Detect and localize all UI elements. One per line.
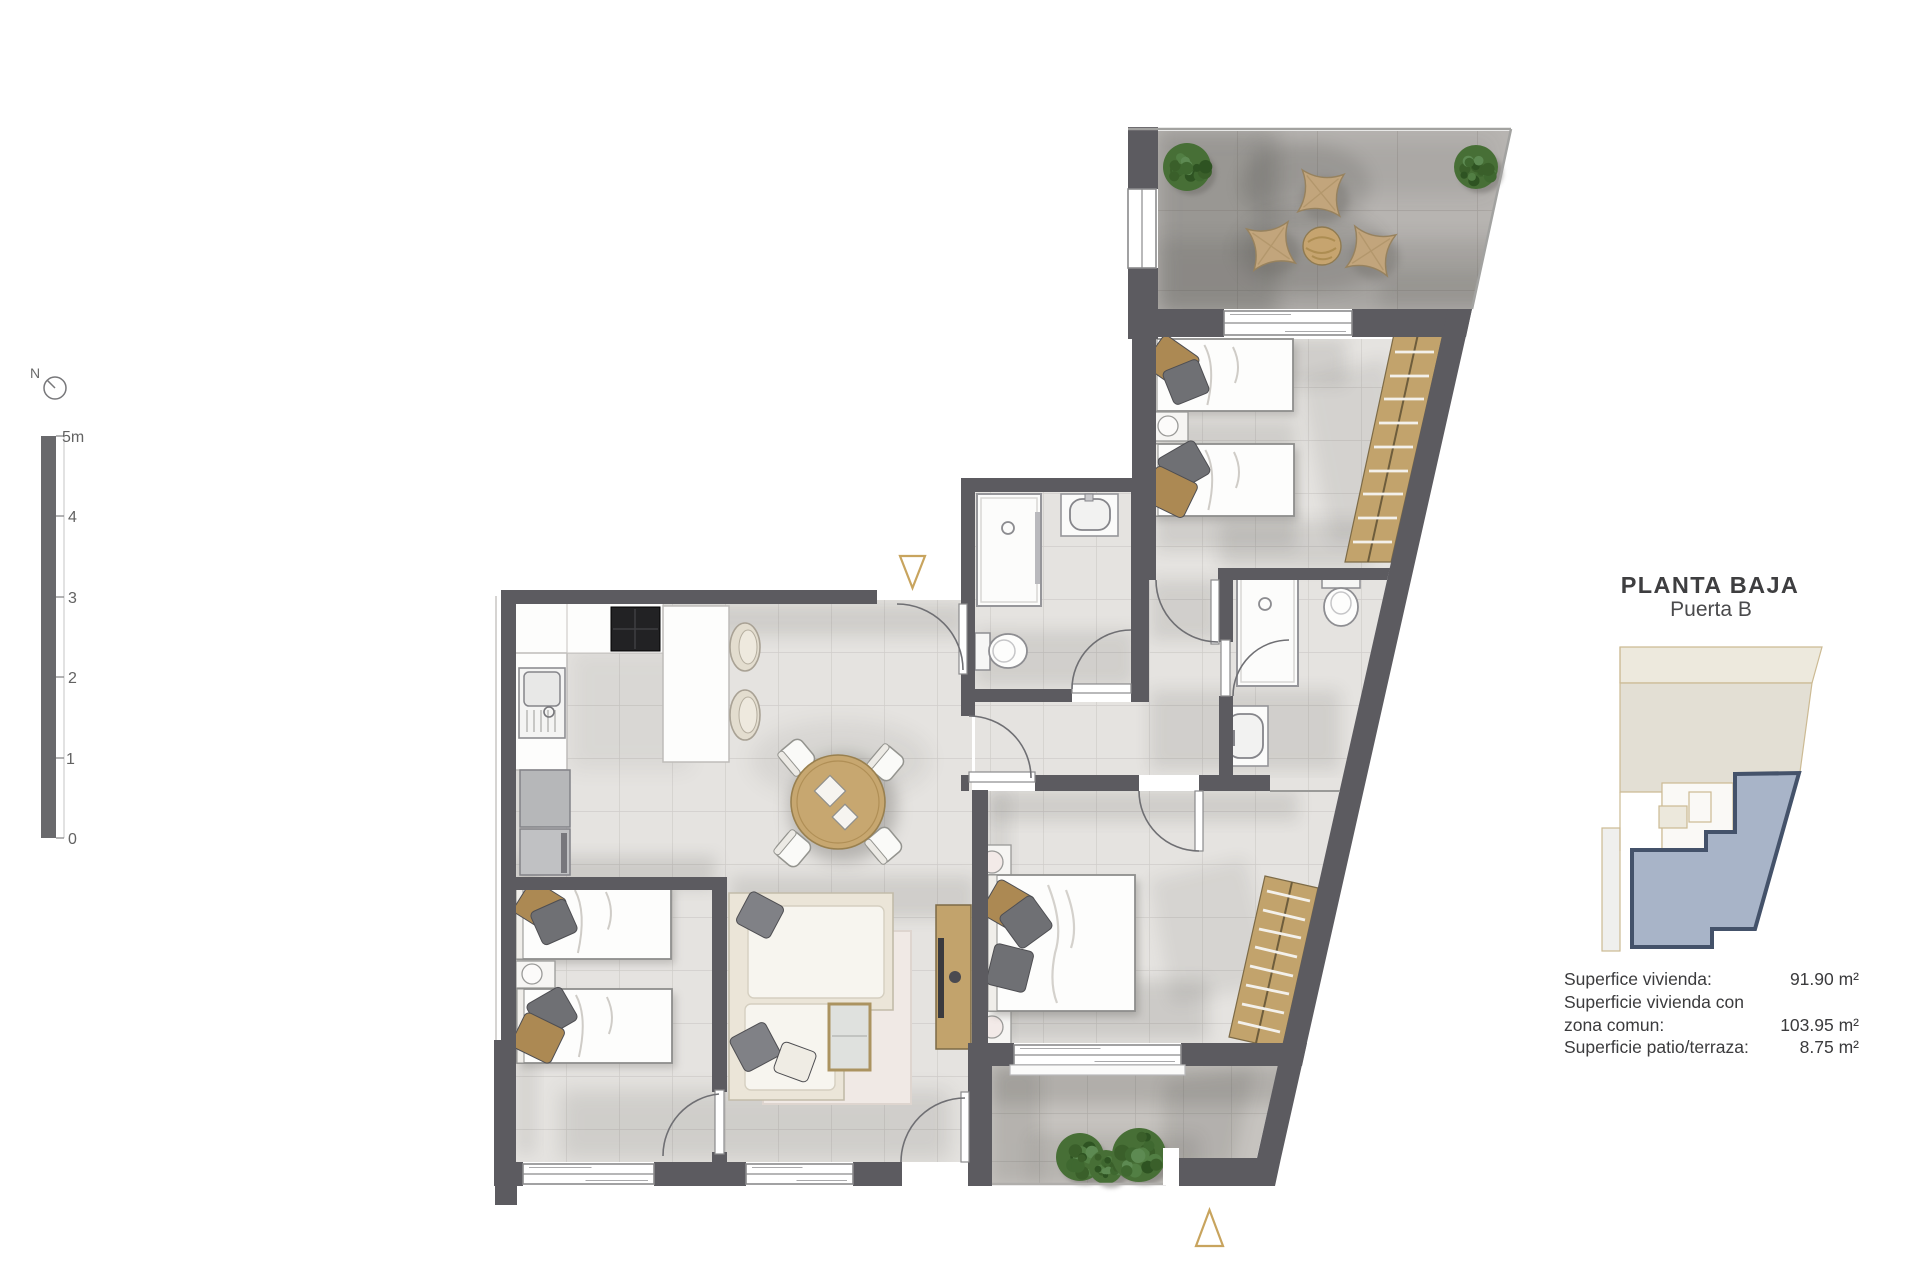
svg-text:Superfice vivienda:: Superfice vivienda: bbox=[1564, 969, 1712, 989]
svg-text:103.95 m²: 103.95 m² bbox=[1780, 1015, 1859, 1035]
svg-text:4: 4 bbox=[68, 509, 77, 526]
svg-text:PLANTA BAJA: PLANTA BAJA bbox=[1621, 572, 1800, 598]
svg-text:91.90 m²: 91.90 m² bbox=[1790, 969, 1859, 989]
svg-text:2: 2 bbox=[68, 670, 77, 687]
svg-text:Superficie patio/terraza:: Superficie patio/terraza: bbox=[1564, 1037, 1749, 1057]
svg-text:Superficie vivienda con: Superficie vivienda con bbox=[1564, 992, 1744, 1012]
svg-text:zona comun:: zona comun: bbox=[1564, 1015, 1664, 1035]
svg-text:1: 1 bbox=[66, 751, 75, 768]
svg-text:Puerta B: Puerta B bbox=[1670, 598, 1752, 621]
svg-text:8.75 m²: 8.75 m² bbox=[1800, 1037, 1859, 1057]
svg-text:5m: 5m bbox=[62, 429, 84, 446]
svg-text:0: 0 bbox=[68, 831, 77, 848]
svg-text:N: N bbox=[30, 365, 40, 381]
svg-text:3: 3 bbox=[68, 590, 77, 607]
